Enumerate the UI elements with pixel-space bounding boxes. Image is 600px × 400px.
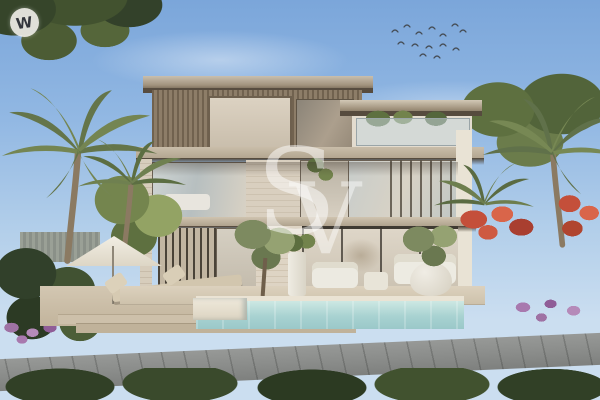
outdoor-coffee-table [364,272,388,290]
olive-tree-right [392,214,468,270]
center-watermark-monogram: S V [252,138,362,260]
roof-terrace-glass-balustrade [356,118,470,146]
agency-logo-badge: W [10,8,39,37]
foreground-grass-dark [0,368,600,400]
agency-logo-letter: W [15,12,34,32]
villa-exterior-render: W S V [0,0,600,400]
flame-tree-flowers-right-cluster [550,182,600,244]
bird-flock [390,20,470,65]
overhanging-canopy-top-right [462,0,600,125]
watermark-letter-v: V [290,174,361,266]
